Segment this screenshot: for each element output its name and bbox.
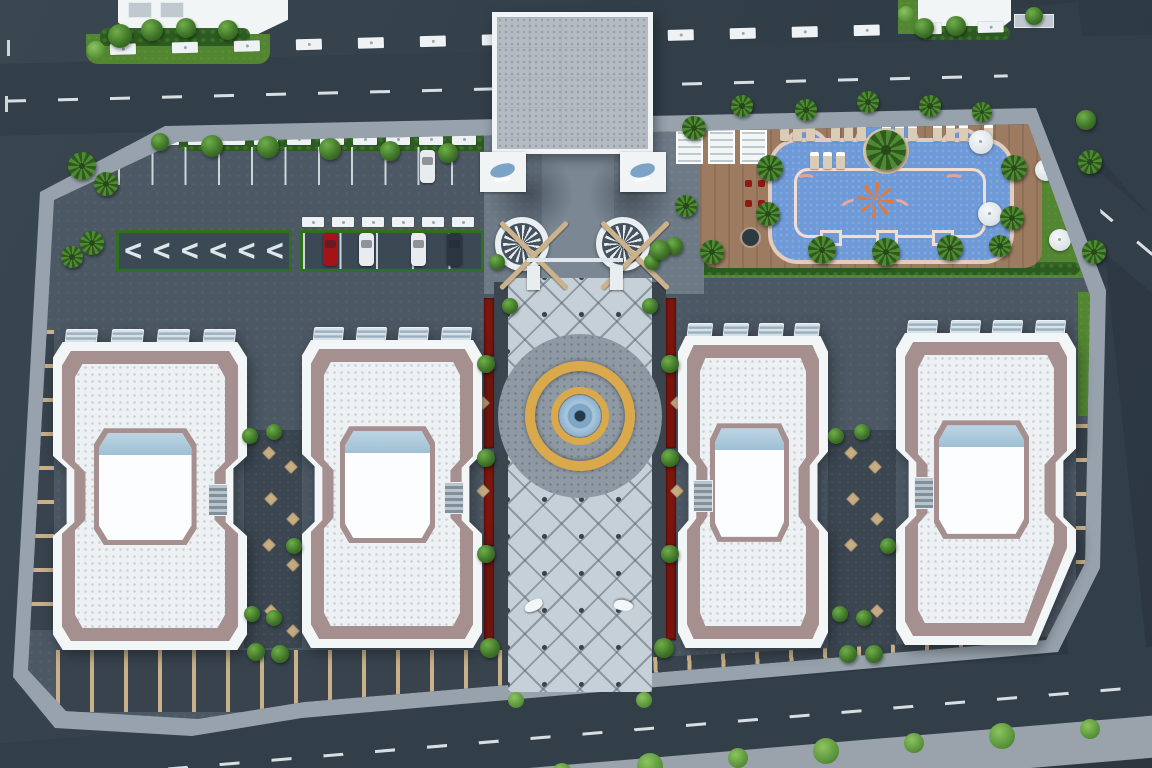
palm-tree bbox=[80, 231, 104, 255]
tree bbox=[1025, 7, 1043, 25]
tree bbox=[438, 143, 458, 163]
bush bbox=[904, 733, 924, 753]
tree bbox=[1076, 110, 1096, 130]
palm-tree bbox=[94, 172, 118, 196]
tree bbox=[650, 240, 670, 260]
palm-tree bbox=[1082, 240, 1106, 264]
vegetation-layer bbox=[0, 0, 1152, 768]
tree bbox=[489, 254, 505, 270]
tree bbox=[477, 545, 495, 563]
palm-tree bbox=[857, 91, 879, 113]
palm-tree bbox=[937, 235, 963, 261]
tree bbox=[642, 298, 658, 314]
site-plan-render: <<<<<< bbox=[0, 0, 1152, 768]
palm-tree bbox=[872, 238, 900, 266]
palm-tree bbox=[68, 152, 96, 180]
palm-tree bbox=[756, 202, 780, 226]
tree bbox=[865, 645, 883, 663]
palm-tree bbox=[757, 155, 783, 181]
tree bbox=[218, 20, 238, 40]
palm-tree bbox=[700, 240, 724, 264]
tree bbox=[477, 355, 495, 373]
tree bbox=[151, 133, 169, 151]
bush bbox=[637, 753, 663, 768]
tree bbox=[856, 610, 872, 626]
palm-tree bbox=[1078, 150, 1102, 174]
tree bbox=[839, 645, 857, 663]
tree bbox=[480, 638, 500, 658]
tree bbox=[502, 298, 518, 314]
bush bbox=[728, 748, 748, 768]
palm-tree bbox=[675, 195, 697, 217]
tree bbox=[914, 18, 934, 38]
bush bbox=[1080, 719, 1100, 739]
tree bbox=[247, 643, 265, 661]
palm-tree bbox=[989, 235, 1011, 257]
tree bbox=[257, 136, 279, 158]
palm-tree bbox=[795, 99, 817, 121]
palm-tree bbox=[972, 102, 992, 122]
tree bbox=[828, 428, 844, 444]
tree bbox=[880, 538, 896, 554]
tree bbox=[832, 606, 848, 622]
tree bbox=[108, 24, 132, 48]
tree bbox=[654, 638, 674, 658]
bush bbox=[636, 692, 652, 708]
tree bbox=[319, 138, 341, 160]
tree bbox=[266, 610, 282, 626]
palm-tree bbox=[808, 236, 836, 264]
tree bbox=[141, 19, 163, 41]
tree bbox=[286, 538, 302, 554]
bush bbox=[989, 723, 1015, 749]
palm-tree bbox=[919, 95, 941, 117]
palm-tree bbox=[1001, 155, 1027, 181]
tree bbox=[477, 449, 495, 467]
bush bbox=[508, 692, 524, 708]
palm-tree bbox=[731, 95, 753, 117]
tree bbox=[266, 424, 282, 440]
tree bbox=[244, 606, 260, 622]
bush bbox=[813, 738, 839, 764]
tree bbox=[176, 18, 196, 38]
bush bbox=[87, 41, 105, 59]
palm-tree bbox=[61, 246, 83, 268]
tree bbox=[854, 424, 870, 440]
tree bbox=[661, 545, 679, 563]
tree bbox=[271, 645, 289, 663]
palm-tree bbox=[866, 130, 906, 170]
palm-tree bbox=[1000, 206, 1024, 230]
tree bbox=[380, 141, 400, 161]
tree bbox=[201, 135, 223, 157]
bush bbox=[552, 763, 572, 768]
tree bbox=[661, 449, 679, 467]
tree bbox=[661, 355, 679, 373]
tree bbox=[242, 428, 258, 444]
tree bbox=[946, 16, 966, 36]
bush bbox=[898, 6, 914, 22]
palm-tree bbox=[682, 116, 706, 140]
